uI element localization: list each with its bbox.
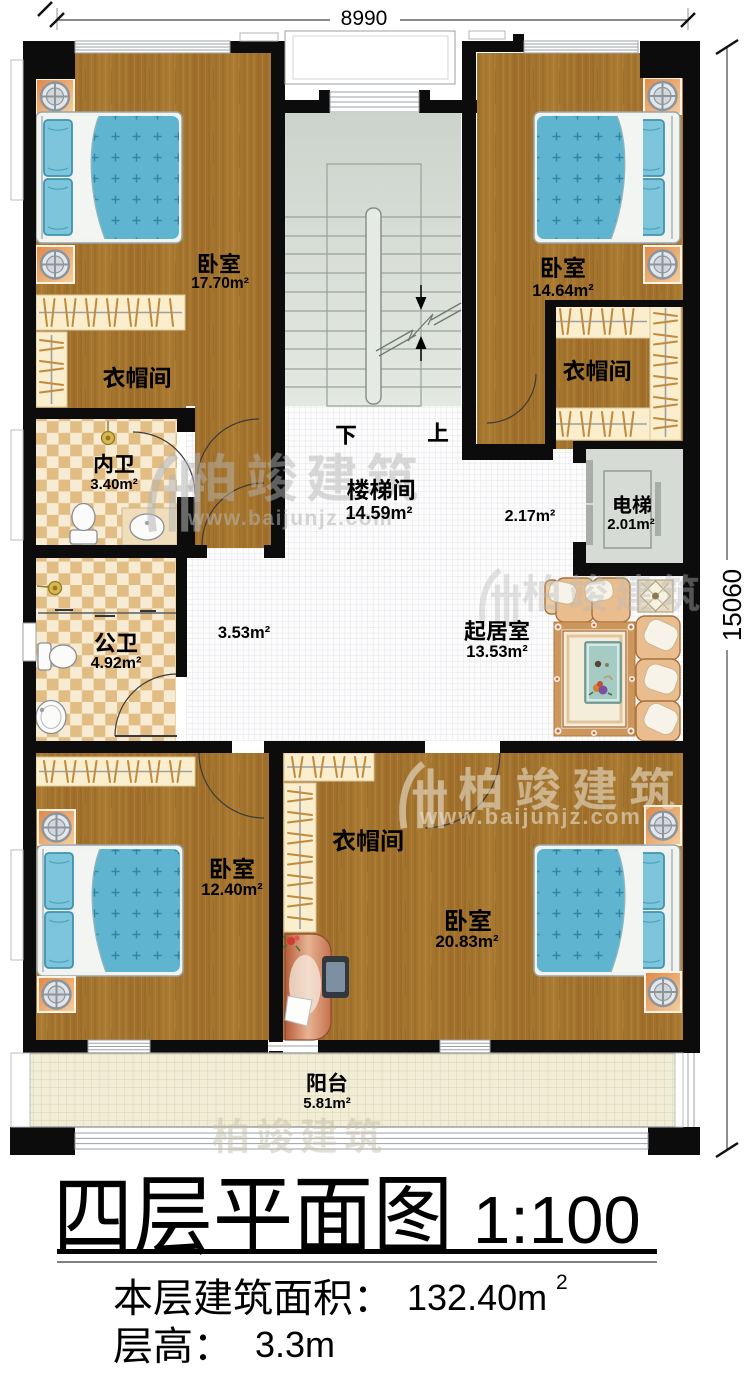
svg-text:12.40m²: 12.40m²: [201, 881, 263, 899]
svg-text:17.70m²: 17.70m²: [191, 275, 249, 292]
svg-text:132.40m: 132.40m: [407, 1277, 547, 1318]
svg-text:www.baijunjz.com: www.baijunjz.com: [419, 804, 642, 829]
svg-text:20.83m²: 20.83m²: [435, 932, 499, 951]
svg-text:15060: 15060: [717, 569, 747, 641]
svg-text:3.3m: 3.3m: [255, 1324, 335, 1365]
svg-text:4.92m²: 4.92m²: [91, 655, 142, 672]
svg-text:2.17m²: 2.17m²: [505, 508, 556, 525]
svg-text:5.81m²: 5.81m²: [303, 1095, 351, 1112]
svg-text:14.59m²: 14.59m²: [345, 503, 412, 523]
svg-text:13.53m²: 13.53m²: [466, 643, 528, 661]
svg-text:3.40m²: 3.40m²: [90, 476, 138, 493]
svg-text:14.64m²: 14.64m²: [532, 282, 594, 300]
svg-text:1:100: 1:100: [473, 1183, 641, 1258]
svg-text:8990: 8990: [341, 7, 388, 30]
svg-text:2.01m²: 2.01m²: [607, 516, 655, 533]
svg-text:2: 2: [556, 1271, 568, 1294]
svg-text:3.53m²: 3.53m²: [218, 624, 271, 642]
